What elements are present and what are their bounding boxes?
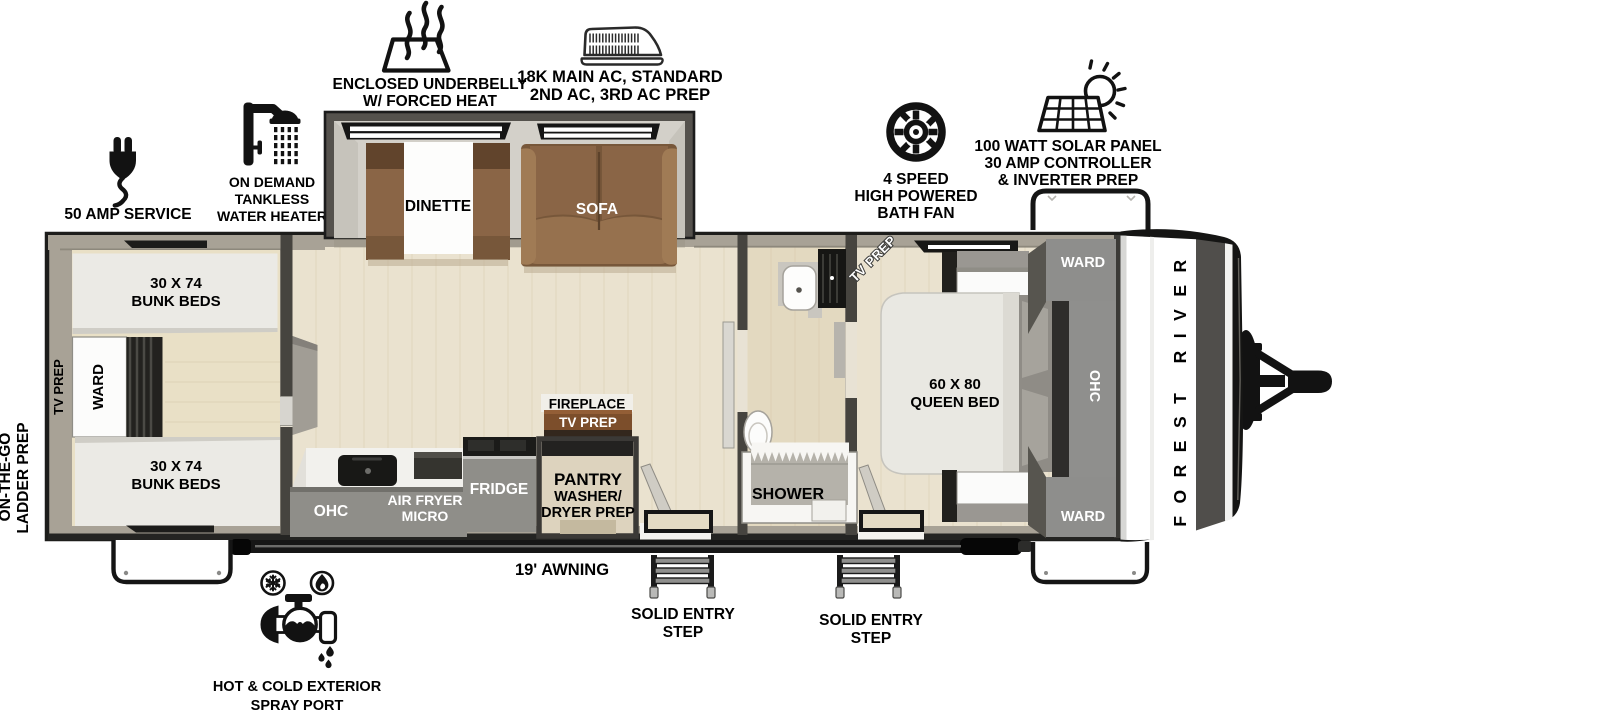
svg-text:HOT & COLD EXTERIOR: HOT & COLD EXTERIOR <box>213 679 382 695</box>
svg-text:DINETTE: DINETTE <box>405 198 471 215</box>
svg-text:SOLID ENTRY: SOLID ENTRY <box>631 606 735 623</box>
svg-text:FRIDGE: FRIDGE <box>470 481 529 498</box>
svg-text:50 AMP SERVICE: 50 AMP SERVICE <box>64 206 191 223</box>
svg-text:WARD: WARD <box>1061 255 1105 271</box>
svg-text:SOFA: SOFA <box>576 201 618 218</box>
svg-text:PANTRY: PANTRY <box>554 470 623 489</box>
svg-text:30 X 74: 30 X 74 <box>150 275 202 292</box>
svg-text:DRYER PREP: DRYER PREP <box>541 505 635 521</box>
svg-text:& INVERTER PREP: & INVERTER PREP <box>998 172 1138 189</box>
svg-text:60 X 80: 60 X 80 <box>929 376 981 393</box>
svg-text:OHC: OHC <box>1086 370 1102 403</box>
svg-text:ON-THE-GO: ON-THE-GO <box>0 433 14 522</box>
svg-text:TV PREP: TV PREP <box>559 415 617 430</box>
svg-text:FIREPLACE: FIREPLACE <box>549 397 626 412</box>
svg-text:FOREST RIVER: FOREST RIVER <box>1170 247 1190 526</box>
svg-text:STEP: STEP <box>851 630 891 647</box>
svg-text:QUEEN BED: QUEEN BED <box>910 394 999 411</box>
svg-text:W/ FORCED HEAT: W/ FORCED HEAT <box>363 93 498 110</box>
svg-text:TANKLESS: TANKLESS <box>235 191 309 207</box>
svg-text:TV PREP: TV PREP <box>51 359 66 415</box>
svg-text:19' AWNING: 19' AWNING <box>515 561 609 579</box>
svg-text:SPRAY PORT: SPRAY PORT <box>251 698 344 713</box>
svg-text:SOLID ENTRY: SOLID ENTRY <box>819 612 923 629</box>
svg-text:WASHER/: WASHER/ <box>554 489 622 505</box>
svg-text:18K MAIN AC, STANDARD: 18K MAIN AC, STANDARD <box>517 68 722 86</box>
svg-text:30 X 74: 30 X 74 <box>150 458 202 475</box>
svg-text:BUNK BEDS: BUNK BEDS <box>131 476 220 493</box>
svg-text:OHC: OHC <box>314 503 348 520</box>
svg-text:30 AMP CONTROLLER: 30 AMP CONTROLLER <box>984 155 1151 172</box>
svg-text:WARD: WARD <box>90 364 107 410</box>
svg-text:ENCLOSED UNDERBELLY: ENCLOSED UNDERBELLY <box>333 76 529 93</box>
svg-text:STEP: STEP <box>663 624 703 641</box>
svg-text:4 SPEED: 4 SPEED <box>883 171 948 188</box>
svg-text:WATER HEATER: WATER HEATER <box>217 208 327 224</box>
svg-text:SHOWER: SHOWER <box>752 486 824 503</box>
svg-text:BATH FAN: BATH FAN <box>877 205 954 222</box>
svg-text:MICRO: MICRO <box>402 508 449 524</box>
svg-text:2ND AC, 3RD AC PREP: 2ND AC, 3RD AC PREP <box>530 86 710 104</box>
svg-text:LADDER PREP: LADDER PREP <box>15 422 32 533</box>
svg-text:BUNK BEDS: BUNK BEDS <box>131 293 220 310</box>
svg-text:ON DEMAND: ON DEMAND <box>229 174 315 190</box>
svg-text:AIR FRYER: AIR FRYER <box>388 492 463 508</box>
svg-text:100 WATT SOLAR PANEL: 100 WATT SOLAR PANEL <box>974 138 1161 155</box>
svg-text:WARD: WARD <box>1061 509 1105 525</box>
svg-text:HIGH POWERED: HIGH POWERED <box>854 188 977 205</box>
